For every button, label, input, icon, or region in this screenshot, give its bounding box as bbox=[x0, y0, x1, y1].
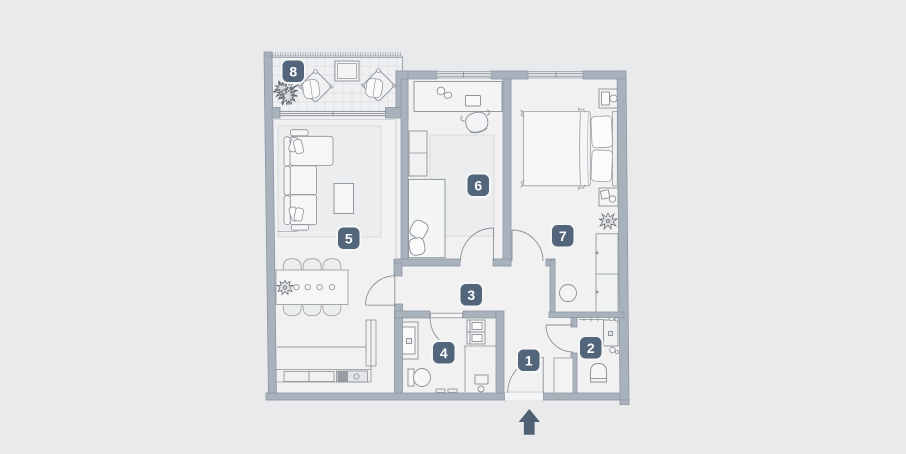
svg-text:3: 3 bbox=[467, 287, 475, 303]
svg-text:6: 6 bbox=[474, 177, 482, 193]
svg-text:8: 8 bbox=[289, 63, 297, 79]
svg-text:2: 2 bbox=[587, 340, 595, 356]
svg-text:7: 7 bbox=[559, 228, 567, 244]
svg-text:5: 5 bbox=[345, 230, 353, 246]
svg-text:4: 4 bbox=[440, 345, 448, 361]
svg-text:1: 1 bbox=[525, 352, 533, 368]
